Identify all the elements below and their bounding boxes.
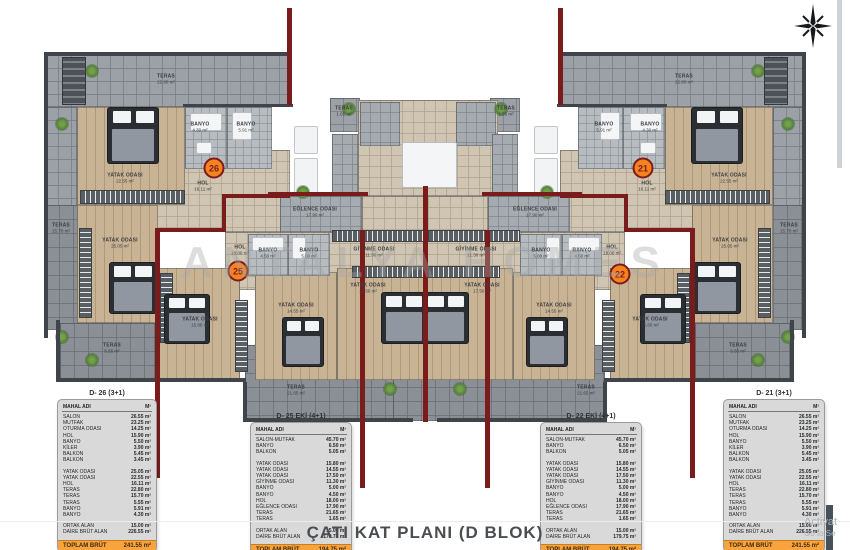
total-label: TOPLAM BRÜT <box>63 543 107 549</box>
plan-title: ÇATI KAT PLANI (D BLOK) <box>0 523 850 543</box>
area-value-cell: 5.05 m² <box>619 449 636 455</box>
room-name-cell: BALKON <box>256 449 276 455</box>
scrollbar-track <box>837 0 842 168</box>
column-header: M² <box>813 404 819 410</box>
room-name-cell: BANYO <box>729 512 747 518</box>
activate-windows-watermark: Activat Go to Se <box>804 516 837 539</box>
column-header: MAHAL ADI <box>729 404 757 410</box>
area-value-cell: 3.45 m² <box>134 457 151 463</box>
floor-plan-page: TERAS22.80 m²TERAS22.80 m²TERAS15.70 m²T… <box>0 0 850 550</box>
column-header: M² <box>145 404 151 410</box>
column-header: M² <box>630 427 636 433</box>
area-value-cell: 4.30 m² <box>134 512 151 518</box>
total-value: 241.55 m² <box>124 543 151 549</box>
unit-table-title: D- 25 EKİ (4+1) <box>250 413 352 420</box>
activate-windows-line1: Activat <box>804 516 837 529</box>
room-name-cell: BALKON <box>729 457 749 463</box>
unit-table-header: MAHAL ADIM² <box>728 404 820 412</box>
unit-area-tables: D- 26 (3+1)MAHAL ADIM²SALON26.55 m²MUTFA… <box>0 0 850 550</box>
column-header: MAHAL ADI <box>546 427 574 433</box>
total-label: TOPLAM BRÜT <box>729 543 773 549</box>
column-header: MAHAL ADI <box>256 427 284 433</box>
area-value-cell: 3.45 m² <box>802 457 819 463</box>
unit-table-title: D- 22 EKİ (4+1) <box>540 413 642 420</box>
unit-table-title: D- 21 (3+1) <box>723 390 825 397</box>
unit-table-title: D- 26 (3+1) <box>57 390 157 397</box>
room-name-cell: BANYO <box>63 512 81 518</box>
unit-table-header: MAHAL ADIM² <box>255 427 347 435</box>
column-header: M² <box>340 427 346 433</box>
total-band: TOPLAM BRÜT194.75 m² <box>251 544 351 550</box>
unit-table-header: MAHAL ADIM² <box>545 427 637 435</box>
area-value-cell: 5.05 m² <box>329 449 346 455</box>
page-divider <box>0 521 850 522</box>
total-band: TOPLAM BRÜT194.75 m² <box>541 544 641 550</box>
room-name-cell: BALKON <box>63 457 83 463</box>
activate-windows-line2: Go to Se <box>804 529 837 539</box>
total-value: 241.55 m² <box>792 543 819 549</box>
unit-table-header: MAHAL ADIM² <box>62 404 152 412</box>
column-header: MAHAL ADI <box>63 404 91 410</box>
room-name-cell: BALKON <box>546 449 566 455</box>
